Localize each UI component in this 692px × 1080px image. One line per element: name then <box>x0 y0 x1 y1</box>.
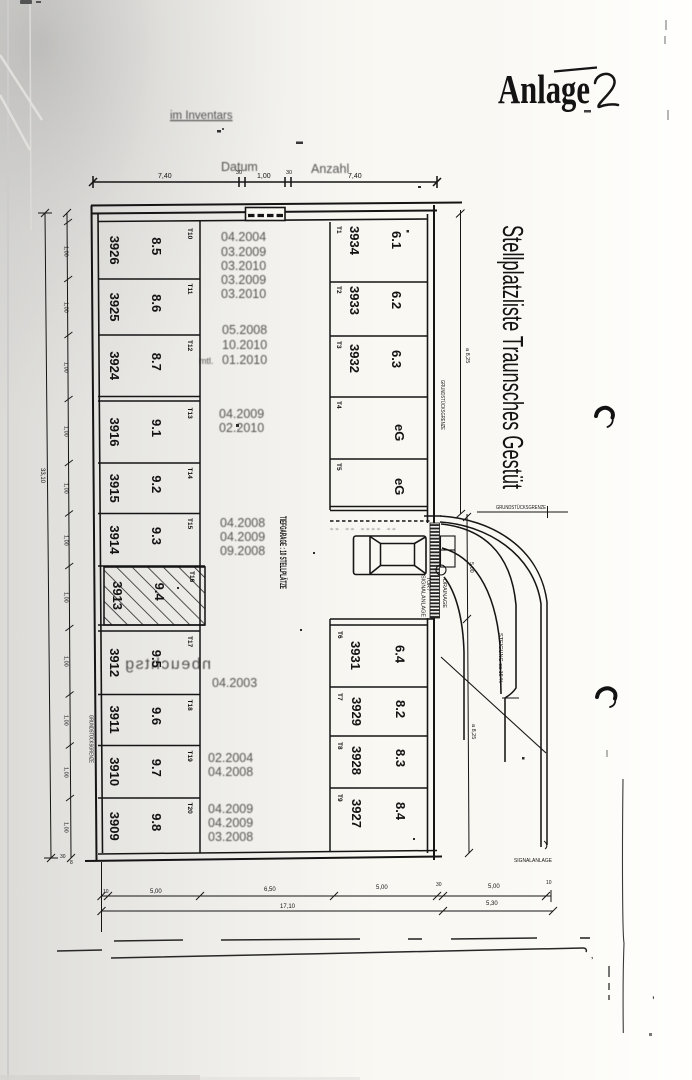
svg-text:a 8,25: a 8,25 <box>470 724 476 739</box>
svg-text:T15: T15 <box>186 518 193 530</box>
svg-text:T19: T19 <box>186 751 193 763</box>
svg-text:9.6: 9.6 <box>149 707 164 725</box>
svg-text:5,00: 5,00 <box>376 885 388 891</box>
svg-text:3925: 3925 <box>107 293 122 322</box>
svg-text:T16: T16 <box>188 571 195 583</box>
svg-text:04.2004: 04.2004 <box>221 230 266 244</box>
svg-text:9.7: 9.7 <box>149 759 164 777</box>
svg-text:Stellplatzliste Traunsches Ges: Stellplatzliste Traunsches Gestüt <box>496 225 528 489</box>
svg-text:1,00: 1,00 <box>63 535 69 546</box>
svg-text:5,00: 5,00 <box>150 889 162 895</box>
svg-text:-- -- ---- --: -- -- ---- -- <box>330 524 398 535</box>
svg-text:04.2008: 04.2008 <box>208 765 253 779</box>
svg-text:1,00: 1,00 <box>63 483 69 494</box>
svg-text:17,10: 17,10 <box>280 904 296 910</box>
svg-text:7,40: 7,40 <box>158 173 172 180</box>
svg-text:Anlage: Anlage <box>498 66 590 112</box>
svg-text:T13: T13 <box>186 408 193 420</box>
svg-text:01.2010: 01.2010 <box>222 353 267 367</box>
svg-text:mtl.: mtl. <box>199 356 214 366</box>
svg-text:8.7: 8.7 <box>149 353 164 371</box>
svg-text:3913: 3913 <box>110 581 125 610</box>
svg-text:GRUNDSTÜCKSGRENZE: GRUNDSTÜCKSGRENZE <box>496 504 546 511</box>
svg-text:02.2004: 02.2004 <box>208 751 253 765</box>
svg-text:8: 8 <box>70 860 73 866</box>
svg-text:3929: 3929 <box>349 697 364 726</box>
svg-text:10.2010: 10.2010 <box>222 338 267 352</box>
svg-text:04.2009: 04.2009 <box>220 530 265 544</box>
svg-text:5,30: 5,30 <box>486 901 498 907</box>
svg-text:03.2010: 03.2010 <box>221 259 266 273</box>
svg-text:1,00: 1,00 <box>63 246 69 257</box>
svg-text:3915: 3915 <box>107 474 122 503</box>
svg-text:6.4: 6.4 <box>393 645 408 664</box>
svg-text:T9: T9 <box>336 794 343 802</box>
svg-text:T10: T10 <box>186 228 193 240</box>
svg-text:1,00: 1,00 <box>63 362 69 373</box>
svg-text:9.8: 9.8 <box>149 813 164 831</box>
svg-text:8.3: 8.3 <box>393 749 408 767</box>
svg-text:1,00: 1,00 <box>63 715 69 726</box>
svg-text:04.2009: 04.2009 <box>219 407 264 421</box>
svg-text:a 8,25: a 8,25 <box>464 348 470 363</box>
svg-text:T6: T6 <box>336 631 343 639</box>
svg-text:3924: 3924 <box>107 351 122 381</box>
svg-text:04.2008: 04.2008 <box>220 516 265 530</box>
svg-text:3928: 3928 <box>349 746 364 775</box>
svg-text:05.2008: 05.2008 <box>222 323 267 337</box>
svg-text:GRUNDSTÜCKSGRENZE: GRUNDSTÜCKSGRENZE <box>439 380 446 430</box>
svg-text:T17: T17 <box>186 636 193 648</box>
svg-text:6.1: 6.1 <box>389 231 404 249</box>
svg-text:6,50: 6,50 <box>264 887 276 893</box>
svg-text:09.2008: 09.2008 <box>220 544 265 558</box>
svg-text:04.2003: 04.2003 <box>212 676 257 690</box>
svg-text:1,00: 1,00 <box>63 426 69 437</box>
svg-text:’: ’ <box>652 994 655 1008</box>
svg-text:3932: 3932 <box>347 344 362 373</box>
svg-text:30: 30 <box>60 854 66 860</box>
svg-text:8.4: 8.4 <box>393 802 408 821</box>
svg-text:30: 30 <box>436 882 442 888</box>
svg-text:im Inventars: im Inventars <box>170 110 233 122</box>
svg-text:3910: 3910 <box>107 757 122 786</box>
svg-text:03.2009: 03.2009 <box>221 245 266 259</box>
svg-text:5,00: 5,00 <box>468 562 474 573</box>
svg-text:3933: 3933 <box>347 286 362 315</box>
svg-text:T7: T7 <box>336 693 343 701</box>
svg-text:T12: T12 <box>186 340 193 352</box>
svg-text:T8: T8 <box>336 742 343 750</box>
svg-text:02.2010: 02.2010 <box>219 421 264 435</box>
svg-text:3926: 3926 <box>107 236 122 265</box>
svg-text:10: 10 <box>103 889 109 895</box>
svg-text:nbeuchtsg: nbeuchtsg <box>124 656 211 673</box>
svg-text:1,00: 1,00 <box>63 592 69 603</box>
svg-text:3912: 3912 <box>107 648 122 677</box>
svg-text:TIEFGARAGE : 10 STELLPLÄTZE: TIEFGARAGE : 10 STELLPLÄTZE <box>277 516 288 589</box>
svg-text:3909: 3909 <box>107 812 122 841</box>
svg-text:10: 10 <box>546 880 552 886</box>
svg-text:SIGNALANLAGE: SIGNALANLAGE <box>514 858 552 864</box>
svg-text:04.2009: 04.2009 <box>208 816 253 830</box>
svg-text:3914: 3914 <box>107 525 122 555</box>
svg-text:30: 30 <box>286 170 292 176</box>
svg-text:DRAINAGE: DRAINAGE <box>441 579 447 609</box>
svg-text:8.5: 8.5 <box>149 237 164 255</box>
svg-text:3931: 3931 <box>348 641 363 670</box>
svg-text:9.4: 9.4 <box>152 583 167 602</box>
svg-text:’: ’ <box>591 956 593 967</box>
svg-text:3916: 3916 <box>107 418 122 447</box>
svg-text:9.2: 9.2 <box>149 475 164 493</box>
svg-text:30: 30 <box>236 170 242 176</box>
svg-text:03.2008: 03.2008 <box>208 830 253 844</box>
svg-text:7,40: 7,40 <box>348 173 362 180</box>
svg-text:8.6: 8.6 <box>149 294 164 312</box>
svg-text:6.2: 6.2 <box>389 291 404 309</box>
svg-text:eG: eG <box>392 478 407 495</box>
svg-text:1,00: 1,00 <box>63 302 69 313</box>
svg-text:T5: T5 <box>335 463 342 471</box>
svg-text:1,00: 1,00 <box>63 656 69 667</box>
svg-text:Anzahl: Anzahl <box>311 162 349 176</box>
svg-text:T20: T20 <box>186 803 193 815</box>
svg-text:03.2009: 03.2009 <box>221 273 266 287</box>
svg-text:9.3: 9.3 <box>149 527 164 545</box>
svg-text:1,00: 1,00 <box>63 767 69 778</box>
svg-text:04.2009: 04.2009 <box>208 802 253 816</box>
svg-text:T18: T18 <box>186 700 193 712</box>
svg-text:1,00: 1,00 <box>257 173 271 180</box>
svg-text:eG: eG <box>392 424 407 441</box>
svg-text:1,00: 1,00 <box>63 822 69 833</box>
svg-text:33,10: 33,10 <box>39 468 45 484</box>
svg-text:T3: T3 <box>335 341 342 349</box>
svg-text:STEIGUNG ca 15 %: STEIGUNG ca 15 % <box>497 633 503 683</box>
svg-text:03.2010: 03.2010 <box>221 287 266 301</box>
svg-text:T2: T2 <box>335 286 342 294</box>
svg-text:9.1: 9.1 <box>149 419 164 437</box>
svg-text:T14: T14 <box>186 468 193 480</box>
svg-text:5,00: 5,00 <box>488 884 500 890</box>
svg-text:3934: 3934 <box>347 226 362 256</box>
svg-text:T4: T4 <box>335 401 342 409</box>
svg-text:8.2: 8.2 <box>393 700 408 718</box>
svg-text:T11: T11 <box>186 284 193 295</box>
svg-text:3911: 3911 <box>107 706 122 734</box>
svg-text:GRUNDSTÜCKSGRENZE: GRUNDSTÜCKSGRENZE <box>88 715 95 763</box>
svg-text:3927: 3927 <box>349 799 364 828</box>
svg-text:6.3: 6.3 <box>389 350 404 368</box>
svg-text:9.5: 9.5 <box>149 650 164 668</box>
svg-text:T1: T1 <box>335 226 342 234</box>
svg-text:SIGNALANLAGE: SIGNALANLAGE <box>420 575 426 618</box>
